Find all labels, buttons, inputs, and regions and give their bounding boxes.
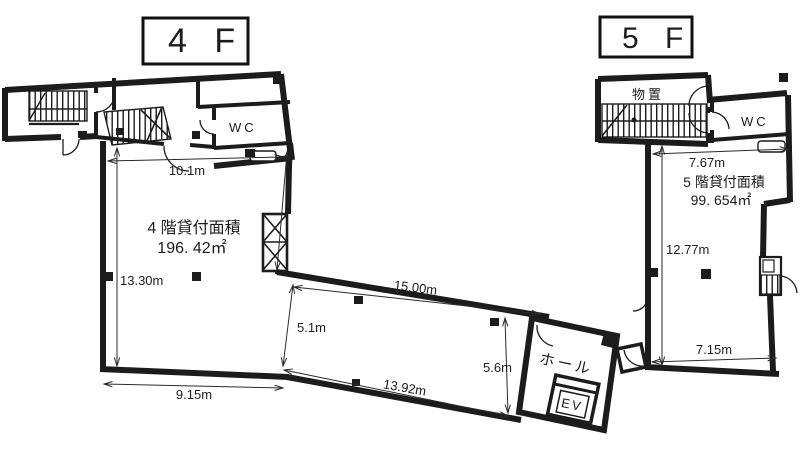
dim-corridor-left: 5.1m — [297, 320, 326, 335]
door-arc — [781, 276, 797, 293]
dim-bottom: 7.15m — [696, 342, 732, 357]
floor4-wc-label: WC — [229, 120, 257, 135]
floor5-label: 5 F — [622, 22, 692, 55]
floor4-elevator: EV — [548, 375, 599, 423]
hall-entry-vestibule — [617, 344, 646, 372]
floor5-plan: 5 F 物置 WC — [598, 17, 797, 374]
floorplan-drawing: 4 F WC — [0, 0, 800, 455]
floor5-area-value: 99. 654㎡ — [691, 192, 752, 208]
floor4-plan: 4 F WC — [5, 18, 646, 430]
floor5-stairs — [602, 104, 707, 137]
dim-corridor-right: 5.6m — [483, 360, 512, 375]
floor4-label-box: 4 F — [143, 18, 248, 64]
floor4-label: 4 F — [168, 22, 244, 60]
door-arc — [689, 86, 708, 106]
floor5-walls-inner — [708, 75, 789, 143]
floor4-area-caption: 4 階貸付面積 — [147, 219, 240, 237]
floor4-area-value: 196. 42㎡ — [157, 239, 226, 257]
floor5-wc-label: WC — [741, 114, 769, 129]
dim-top: 7.67m — [689, 155, 725, 170]
floorplan-page: 4 F WC — [0, 0, 800, 455]
dim-left: 13.30m — [120, 273, 163, 288]
door-arc — [712, 112, 729, 129]
floor5-service-ladder — [760, 257, 797, 295]
floor5-label-box: 5 F — [600, 17, 692, 57]
floor4-stairs-west — [29, 91, 87, 124]
dim-top: 10.1m — [169, 163, 205, 178]
floor5-storage-label: 物置 — [632, 87, 664, 102]
door-arc — [200, 120, 214, 134]
floor4-hall: ホール EV — [519, 318, 646, 430]
floor4-stairs-mid — [104, 107, 171, 145]
dim-bottom: 9.15m — [176, 387, 212, 402]
floor4-shaft-window — [263, 214, 287, 271]
floor5-area-caption: 5 階貸付面積 — [683, 174, 765, 190]
door-arc — [63, 139, 79, 155]
dim-left: 12.77m — [666, 242, 709, 257]
